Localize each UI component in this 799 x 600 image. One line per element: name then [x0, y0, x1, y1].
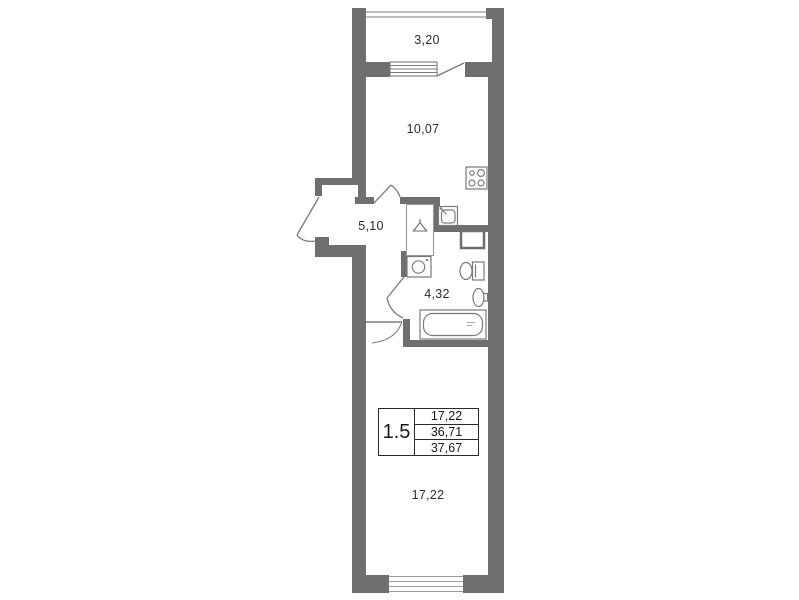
apartment-areas-column: 17,22 36,71 37,67 — [415, 409, 478, 455]
kitchen-sink-icon — [439, 207, 458, 226]
living-room-door — [366, 322, 402, 343]
apartment-info-table: 1.5 17,22 36,71 37,67 — [378, 408, 479, 456]
washing-machine-icon — [407, 257, 431, 278]
balcony-door-leaf — [437, 63, 464, 76]
floor-plan-canvas: 3,20 10,07 5,10 4,32 17,22 1.5 17,22 36,… — [0, 0, 799, 600]
balcony-glazing — [366, 12, 486, 17]
toilet-icon — [460, 262, 484, 280]
wardrobe-icon — [407, 205, 434, 256]
living-area-value: 17,22 — [415, 409, 478, 425]
apartment-type-label: 1.5 — [379, 409, 415, 455]
hall-area-label: 5,10 — [358, 219, 384, 233]
bathroom-door — [387, 277, 404, 318]
stove-icon — [466, 167, 487, 189]
balcony-window-icon — [390, 62, 437, 76]
bottom-window-icon — [389, 577, 463, 592]
balcony-area-label: 3,20 — [414, 33, 440, 47]
bathroom-area-label: 4,32 — [424, 287, 450, 301]
entrance-door — [297, 197, 319, 241]
wash-basin-icon — [473, 289, 488, 307]
kitchen-hall-door — [374, 185, 400, 203]
bathtub-icon — [420, 310, 486, 339]
living-room-area-label: 17,22 — [412, 488, 445, 502]
kitchen-living-area-label: 10,07 — [407, 122, 440, 136]
total-area-value: 36,71 — [415, 425, 478, 441]
floor-plan-drawing — [0, 0, 799, 600]
total-area-with-balcony-value: 37,67 — [415, 440, 478, 455]
vent-shaft — [461, 231, 484, 248]
